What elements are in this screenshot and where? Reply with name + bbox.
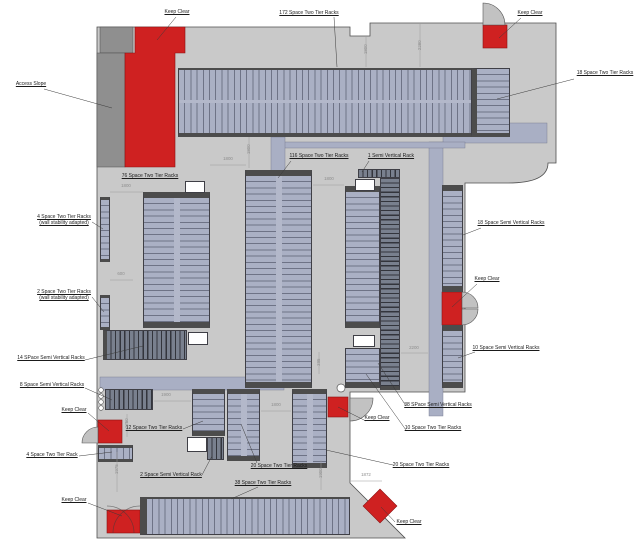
door-swing-icon-right-upper	[462, 292, 478, 308]
keep-clear-zone-right	[442, 292, 462, 325]
walkway-bottom	[100, 377, 284, 390]
hinge-dot	[99, 394, 104, 399]
door-swing-icon-mid	[350, 398, 373, 421]
keep-clear-zone-left	[98, 420, 122, 443]
access-slope-zone	[97, 53, 125, 167]
walkway-vertical	[429, 142, 443, 416]
door-swing-icon-right-lower	[462, 309, 478, 325]
walkway-stub	[271, 137, 285, 177]
column-dot	[337, 384, 345, 392]
door-swing-icon-top-right	[483, 3, 505, 25]
door-swing-icon-left	[82, 427, 98, 443]
floor-base-layer	[0, 0, 640, 540]
hinge-dot	[99, 400, 104, 405]
keep-clear-zone-mid	[328, 397, 348, 417]
hinge-dot	[99, 406, 104, 411]
wall-block	[100, 27, 133, 53]
hinge-dot	[99, 388, 104, 393]
floor-plan: Keep Clear172 Space Two Tier RacksKeep C…	[0, 0, 640, 540]
walkway-top	[283, 142, 465, 148]
walkway-right	[443, 123, 547, 143]
keep-clear-zone-bottom-left	[107, 510, 140, 533]
keep-clear-zone-top-right	[483, 25, 507, 48]
